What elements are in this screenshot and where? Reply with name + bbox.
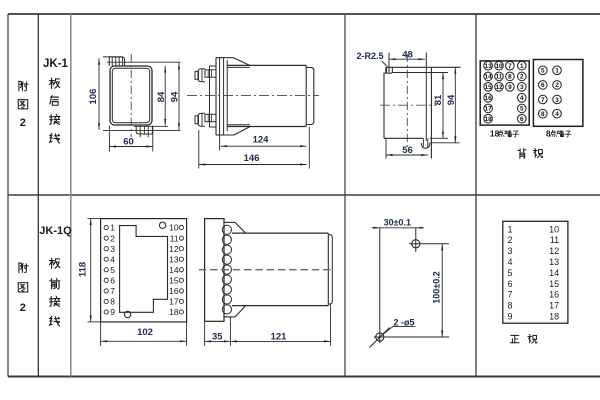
svg-text:12: 12 [169, 244, 179, 254]
svg-text:4: 4 [110, 254, 115, 264]
svg-text:JK-1: JK-1 [43, 58, 69, 70]
svg-text:121: 121 [271, 332, 288, 343]
svg-text:60: 60 [123, 137, 134, 148]
svg-text:2: 2 [555, 82, 559, 89]
svg-text:3: 3 [110, 244, 115, 254]
svg-text:9: 9 [508, 84, 512, 91]
svg-text:2-R2.5: 2-R2.5 [356, 51, 383, 61]
svg-text:146: 146 [244, 153, 260, 164]
svg-text:2: 2 [110, 233, 115, 243]
svg-text:11: 11 [170, 233, 179, 243]
svg-text:3: 3 [508, 246, 513, 256]
svg-text:18: 18 [485, 116, 493, 123]
svg-text:6: 6 [520, 116, 524, 123]
svg-text:8: 8 [546, 129, 551, 139]
svg-text:1: 1 [520, 63, 524, 70]
svg-text:30±0.1: 30±0.1 [384, 218, 411, 228]
svg-text:18: 18 [549, 312, 559, 322]
svg-text:8: 8 [110, 297, 115, 307]
svg-text:81: 81 [433, 94, 444, 105]
svg-text:18: 18 [169, 307, 179, 317]
svg-text:3: 3 [555, 97, 559, 104]
svg-text:5: 5 [520, 106, 524, 113]
svg-text:2: 2 [508, 235, 513, 245]
svg-text:100±0.2: 100±0.2 [431, 271, 441, 303]
svg-text:5: 5 [110, 265, 115, 275]
svg-text:106: 106 [88, 89, 99, 105]
svg-text:6: 6 [110, 275, 115, 285]
svg-text:18: 18 [490, 129, 500, 139]
svg-text:9: 9 [110, 307, 115, 317]
svg-text:6: 6 [541, 82, 545, 89]
svg-text:11: 11 [496, 74, 503, 81]
svg-text:13: 13 [549, 257, 559, 267]
svg-text:4: 4 [508, 257, 513, 267]
svg-text:5: 5 [508, 268, 513, 278]
svg-text:4: 4 [555, 111, 559, 118]
svg-text:13: 13 [485, 63, 493, 70]
svg-text:16: 16 [549, 290, 559, 300]
svg-text:102: 102 [137, 327, 153, 338]
svg-text:16: 16 [485, 95, 493, 102]
svg-text:1: 1 [555, 68, 559, 75]
svg-text:2: 2 [520, 74, 524, 81]
svg-text:4: 4 [520, 95, 524, 102]
svg-text:48: 48 [402, 49, 413, 60]
svg-text:17: 17 [549, 301, 559, 311]
svg-text:15: 15 [169, 275, 179, 285]
svg-text:1: 1 [508, 224, 513, 234]
svg-text:16: 16 [169, 286, 179, 296]
svg-text:JK-1Q: JK-1Q [39, 225, 72, 237]
svg-text:14: 14 [485, 74, 493, 81]
svg-text:124: 124 [253, 134, 270, 145]
svg-text:8: 8 [508, 301, 513, 311]
svg-text:84: 84 [156, 91, 167, 102]
svg-text:35: 35 [212, 332, 223, 343]
svg-text:1: 1 [110, 223, 115, 233]
svg-text:14: 14 [169, 265, 179, 275]
svg-text:5: 5 [541, 68, 545, 75]
svg-text:10: 10 [549, 224, 559, 234]
svg-text:14: 14 [549, 268, 559, 278]
svg-text:10: 10 [169, 223, 179, 233]
svg-text:94: 94 [446, 94, 457, 105]
svg-text:6: 6 [508, 279, 513, 289]
svg-text:7: 7 [508, 63, 512, 70]
svg-text:7: 7 [508, 290, 513, 300]
svg-text:7: 7 [541, 97, 545, 104]
svg-text:17: 17 [485, 106, 493, 113]
svg-text:13: 13 [169, 254, 179, 264]
svg-text:8: 8 [541, 111, 545, 118]
svg-text:17: 17 [169, 297, 179, 307]
svg-text:3: 3 [520, 84, 524, 91]
svg-text:2: 2 [20, 117, 26, 129]
svg-text:7: 7 [110, 286, 115, 296]
svg-text:8: 8 [508, 74, 512, 81]
svg-text:118: 118 [77, 262, 88, 277]
svg-text:2: 2 [20, 302, 26, 314]
svg-text:56: 56 [402, 145, 413, 156]
svg-text:15: 15 [549, 279, 559, 289]
svg-text:94: 94 [169, 91, 180, 102]
svg-text:15: 15 [485, 84, 493, 91]
svg-text:12: 12 [495, 84, 503, 91]
svg-text:11: 11 [550, 235, 559, 245]
svg-text:10: 10 [495, 63, 503, 70]
svg-text:12: 12 [549, 246, 559, 256]
svg-text:9: 9 [508, 312, 513, 322]
